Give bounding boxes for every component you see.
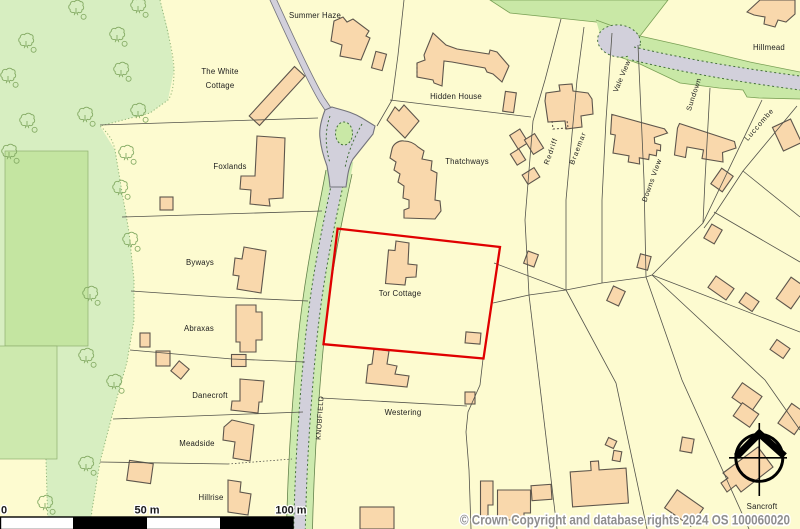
- svg-text:Cottage: Cottage: [206, 81, 235, 90]
- svg-text:Hillmead: Hillmead: [753, 43, 785, 52]
- svg-text:0: 0: [1, 505, 7, 517]
- svg-text:Hillrise: Hillrise: [199, 493, 224, 502]
- svg-text:Tor Cottage: Tor Cottage: [379, 289, 422, 298]
- svg-text:Hidden House: Hidden House: [430, 92, 482, 101]
- svg-text:50 m: 50 m: [134, 505, 159, 517]
- svg-text:Danecroft: Danecroft: [192, 391, 228, 400]
- svg-text:Abraxas: Abraxas: [184, 324, 214, 333]
- svg-text:100 m: 100 m: [275, 505, 306, 517]
- svg-text:Meadside: Meadside: [179, 439, 214, 448]
- svg-text:The White: The White: [201, 67, 238, 76]
- svg-text:Byways: Byways: [186, 258, 214, 267]
- svg-text:Sancroft: Sancroft: [747, 502, 778, 511]
- svg-text:Westering: Westering: [385, 408, 422, 417]
- svg-text:Summer Haze: Summer Haze: [289, 11, 341, 20]
- svg-text:Thatchways: Thatchways: [445, 157, 489, 166]
- svg-text:© Crown Copyright and database: © Crown Copyright and database rights 20…: [460, 513, 790, 529]
- svg-text:Foxlands: Foxlands: [213, 162, 246, 171]
